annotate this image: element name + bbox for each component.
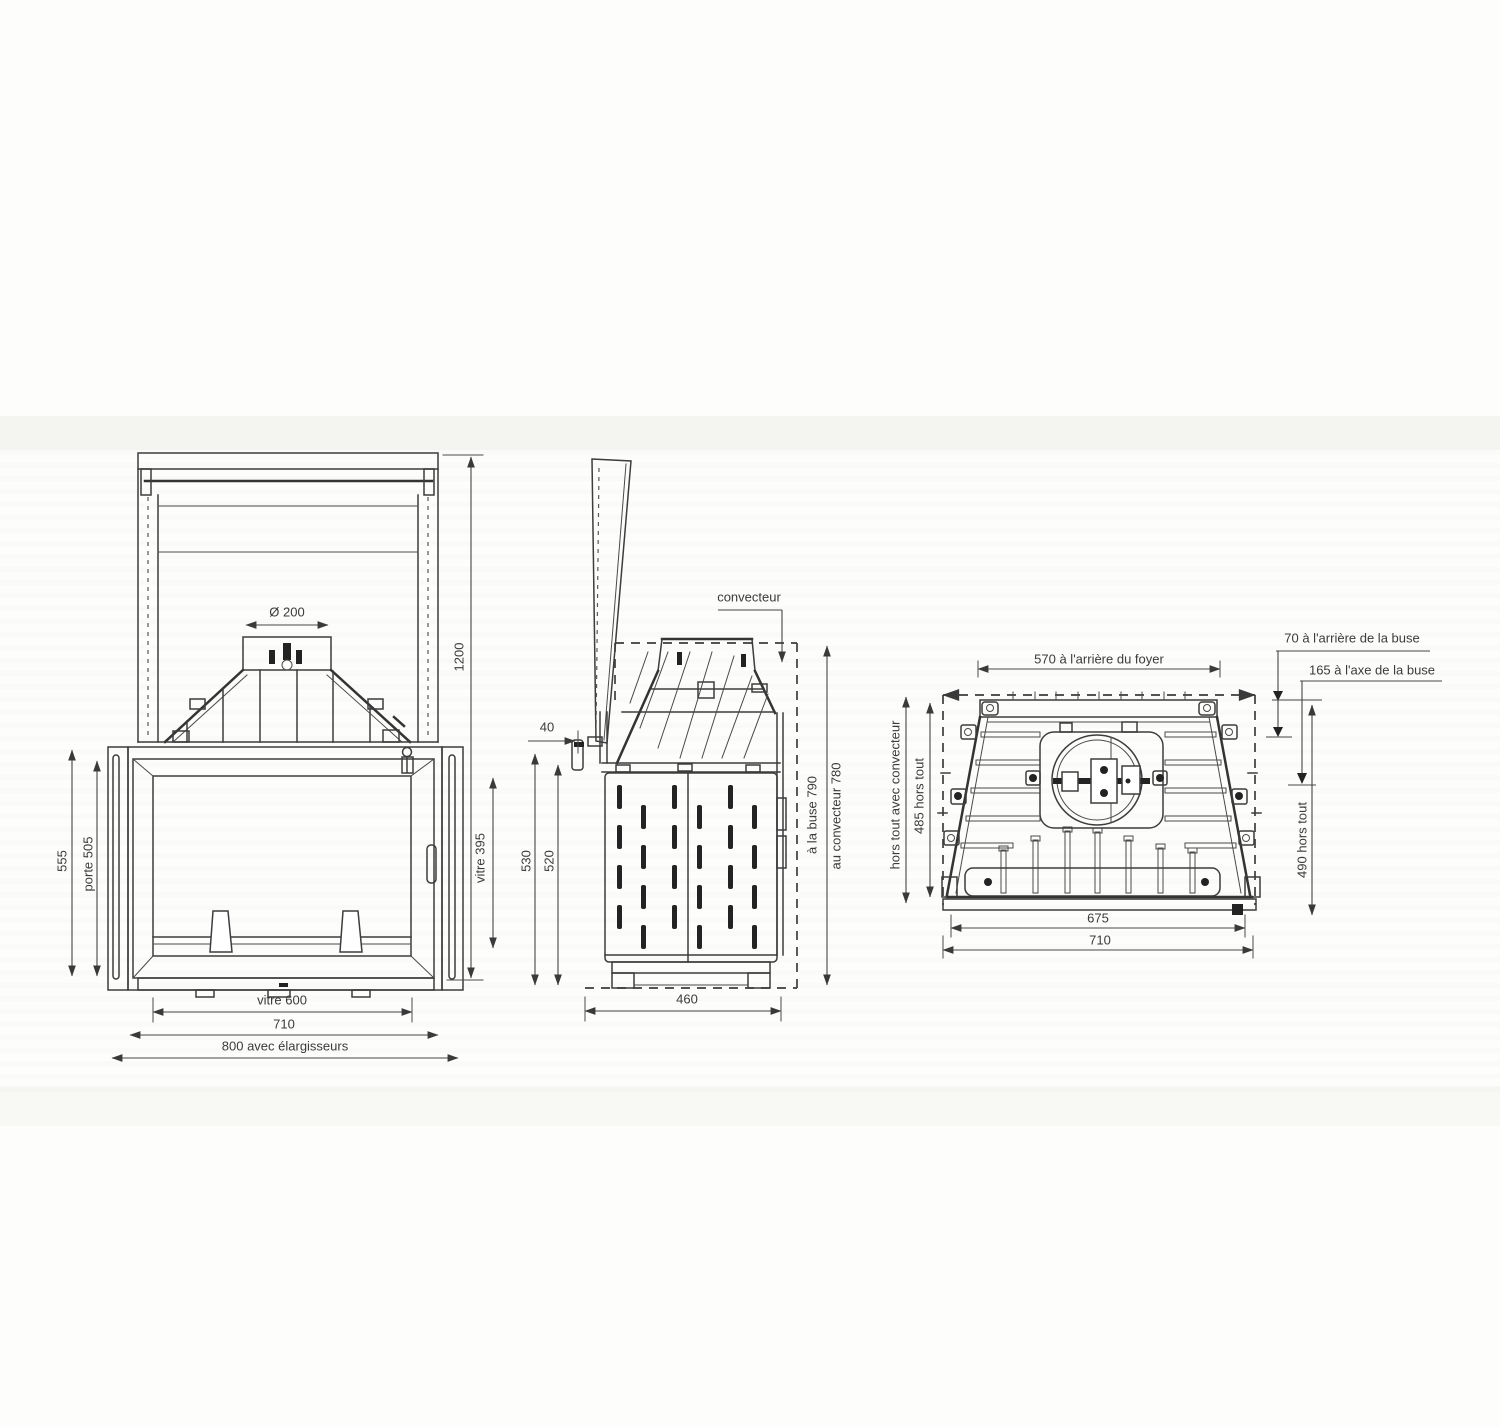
dim-depth: 460	[676, 993, 698, 1006]
dim-width-with-extensions: 800 avec élargisseurs	[222, 1040, 348, 1053]
dim-body-width: 710	[273, 1018, 295, 1031]
dim-glass-width: vitre 600	[257, 994, 307, 1007]
side-view-drawing	[528, 459, 827, 1021]
dim-front-height: 530	[520, 850, 533, 872]
dim-flue-diameter: Ø 200	[269, 606, 304, 619]
dim-front-width-inner: 675	[1087, 912, 1109, 925]
andiron-left	[210, 911, 232, 952]
dim-total-height: 1200	[453, 643, 466, 672]
technical-drawing-lineart	[0, 0, 1500, 1427]
louver-slots	[617, 785, 757, 949]
dim-flue-height: à la buse 790	[806, 776, 819, 854]
dim-glass-height: vitre 395	[474, 833, 487, 883]
top-view-drawing	[906, 651, 1442, 958]
dim-overall-depth: 485 hors tout	[913, 758, 926, 834]
dim-overall-depth-with-convector: hors tout avec convecteur	[889, 721, 902, 870]
dim-frame-height: 520	[543, 850, 556, 872]
dim-convector-height: au convecteur 780	[830, 763, 843, 870]
dim-flue-rear-offset: 70 à l'arrière de la buse	[1284, 632, 1419, 645]
dim-overall-depth-max: 490 hors tout	[1296, 802, 1309, 878]
front-view-drawing	[72, 453, 493, 1058]
dim-flue-axis-offset: 165 à l'axe de la buse	[1309, 664, 1435, 677]
rear-bar-bolts	[1013, 692, 1185, 700]
fireplace-technical-drawing-sheet: Ø 200 1200 555 porte 505 vitre 395 vitre…	[0, 0, 1500, 1427]
dim-door-height: porte 505	[82, 837, 95, 892]
label-convector: convecteur	[717, 591, 781, 604]
dim-front-width: 710	[1089, 934, 1111, 947]
grate-pins	[999, 827, 1197, 893]
dim-rear-firebox-width: 570 à l'arrière du foyer	[1034, 653, 1164, 666]
dim-overall-height: 555	[56, 850, 69, 872]
andiron-right	[340, 911, 362, 952]
dim-door-gap: 40	[540, 721, 554, 734]
open-door	[592, 459, 631, 743]
